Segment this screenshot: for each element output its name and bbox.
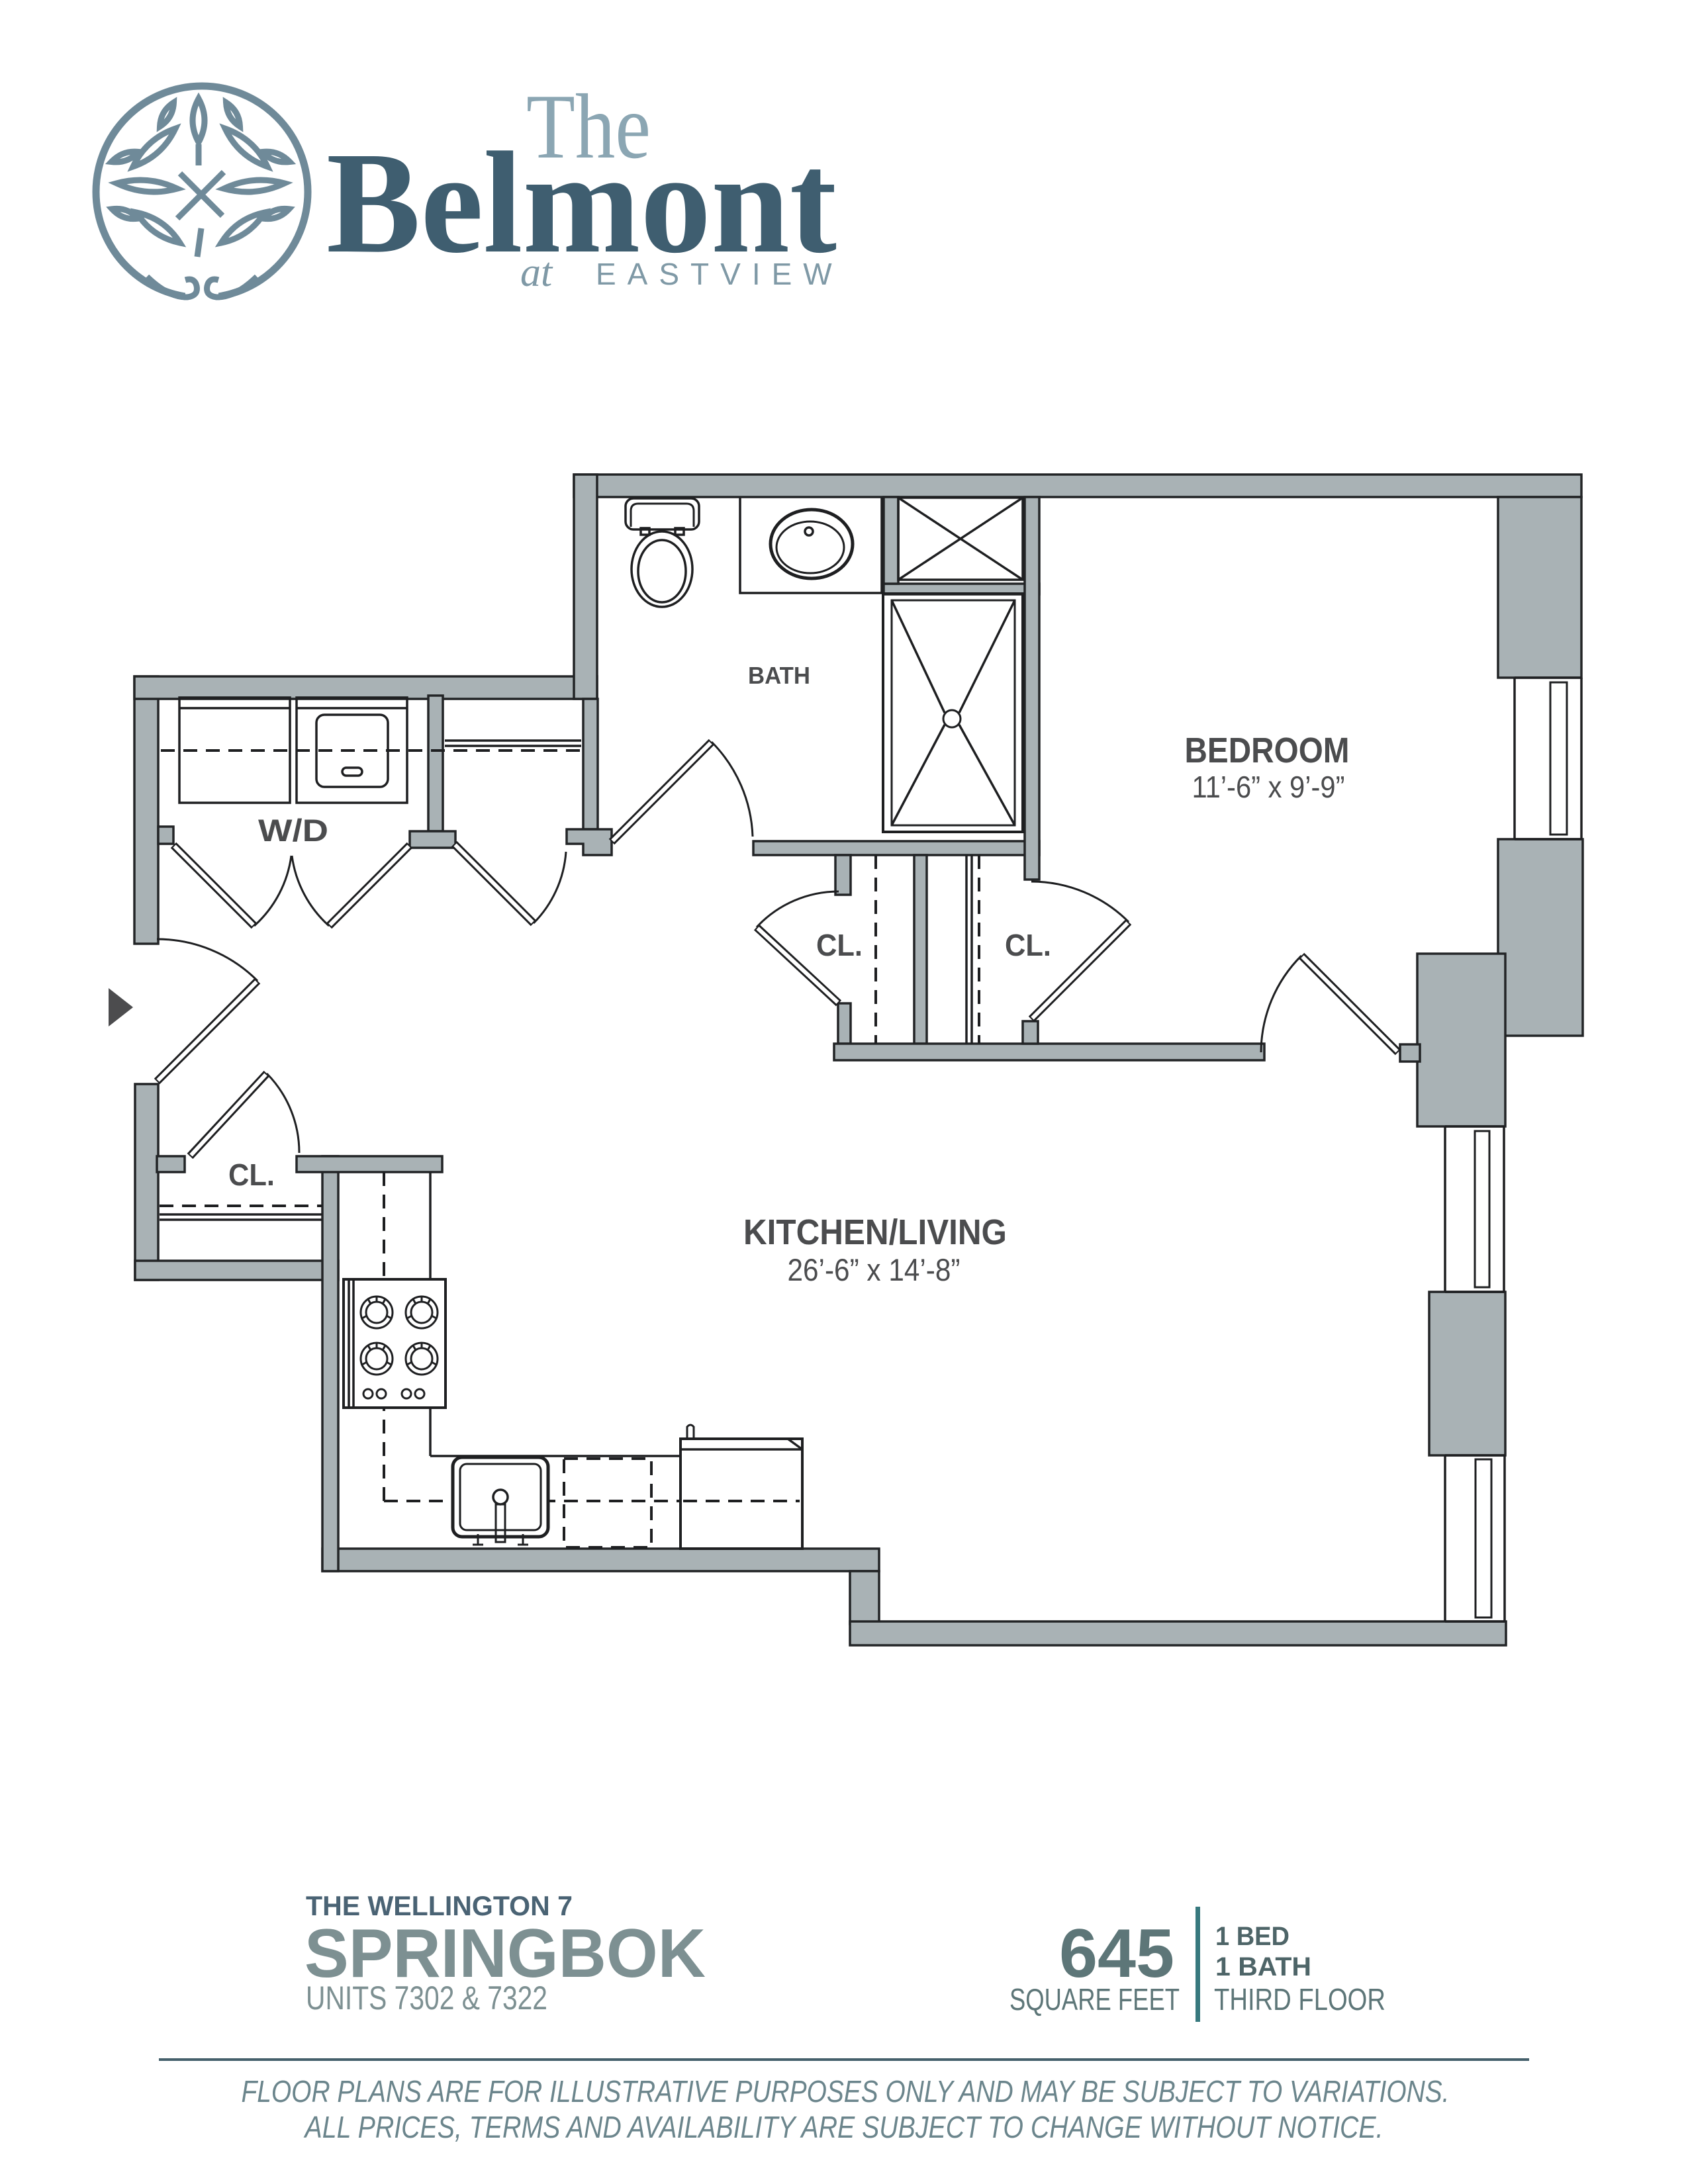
- svg-text:THIRD FLOOR: THIRD FLOOR: [1214, 1982, 1385, 2017]
- svg-text:11’-6” x 9’-9”: 11’-6” x 9’-9”: [1192, 770, 1345, 804]
- svg-text:KITCHEN/LIVING: KITCHEN/LIVING: [743, 1212, 1007, 1252]
- svg-text:CL.: CL.: [228, 1158, 275, 1192]
- svg-text:ALL PRICES, TERMS AND AVAILABI: ALL PRICES, TERMS AND AVAILABILITY ARE S…: [303, 2110, 1383, 2144]
- svg-text:SQUARE FEET: SQUARE FEET: [1009, 1982, 1180, 2017]
- svg-text:FLOOR PLANS ARE FOR ILLUSTRATI: FLOOR PLANS ARE FOR ILLUSTRATIVE PURPOSE…: [242, 2074, 1450, 2109]
- svg-text:CL.: CL.: [1005, 928, 1051, 962]
- svg-text:at: at: [520, 250, 553, 295]
- svg-text:26’-6” x 14’-8”: 26’-6” x 14’-8”: [788, 1252, 961, 1287]
- svg-text:CL.: CL.: [816, 928, 863, 962]
- svg-text:BATH: BATH: [748, 662, 810, 689]
- svg-text:1 BED: 1 BED: [1215, 1922, 1289, 1951]
- svg-text:1 BATH: 1 BATH: [1215, 1952, 1311, 1981]
- svg-text:645: 645: [1059, 1915, 1174, 1992]
- svg-text:W/D: W/D: [258, 813, 328, 848]
- svg-text:UNITS 7302 & 7322: UNITS 7302 & 7322: [306, 1979, 547, 2017]
- svg-text:BEDROOM: BEDROOM: [1185, 731, 1350, 770]
- svg-text:EASTVIEW: EASTVIEW: [596, 257, 843, 291]
